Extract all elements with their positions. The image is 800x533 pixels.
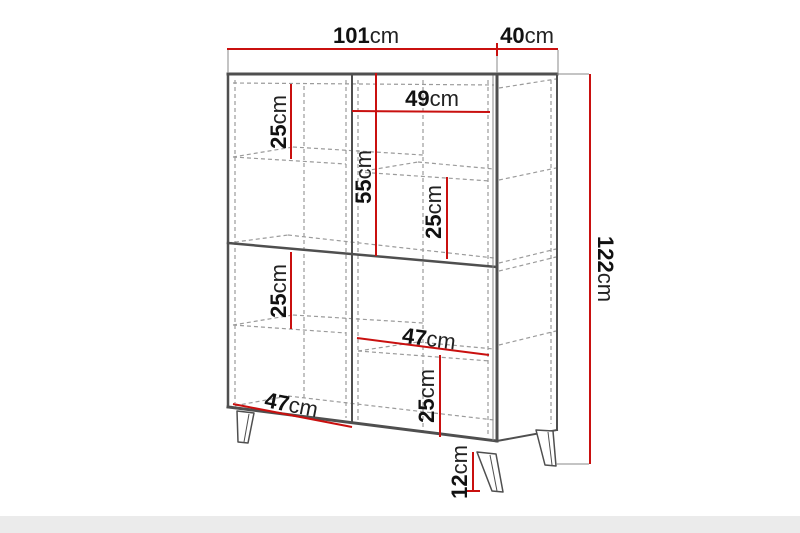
- hidden-shelf-upper-left: [233, 147, 423, 164]
- label-inner-width-lower-left: 47cm: [263, 387, 321, 422]
- label-shelf-lower-left: 25cm: [266, 264, 291, 318]
- hidden-top-underside: [233, 83, 494, 85]
- legs: [237, 411, 556, 492]
- floor-shadow-band: [0, 516, 800, 533]
- label-shelf-lower-right: 25cm: [414, 369, 439, 423]
- label-upper-section-height: 55cm: [351, 150, 376, 204]
- dim-line-inner-width-upper-right: [352, 111, 490, 112]
- label-width-total: 101cm: [333, 23, 399, 48]
- label-inner-width-lower-right: 47cm: [401, 323, 458, 355]
- front-left-leg: [237, 411, 254, 443]
- front-right-leg: [477, 452, 503, 492]
- label-depth-total: 40cm: [500, 23, 554, 48]
- hidden-shelf-upper-right: [358, 162, 494, 181]
- hidden-shelf-lower-left: [233, 315, 423, 333]
- label-height-total: 122cm: [593, 236, 618, 302]
- cabinet-drawing: 101cm 40cm 49cm 25cm 55cm 25cm 122cm 25c…: [0, 0, 800, 533]
- middle-shelf-edge: [228, 243, 497, 267]
- back-right-leg: [536, 430, 556, 466]
- dimension-diagram: 101cm 40cm 49cm 25cm 55cm 25cm 122cm 25c…: [0, 0, 800, 533]
- label-leg-height: 12cm: [447, 445, 472, 499]
- hidden-side-panel-lines: [499, 79, 556, 345]
- label-shelf-upper-left: 25cm: [266, 95, 291, 149]
- label-shelf-upper-right: 25cm: [421, 185, 446, 239]
- label-inner-width-upper-right: 49cm: [405, 86, 459, 111]
